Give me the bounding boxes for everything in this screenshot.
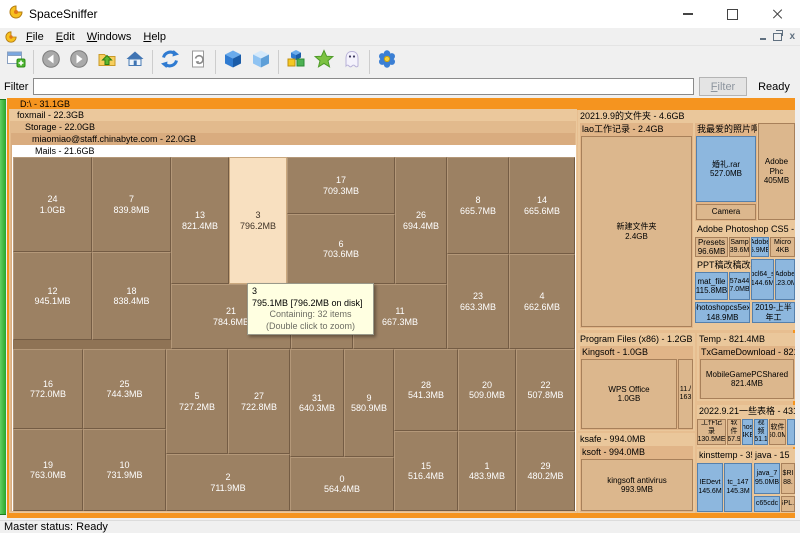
block-label: photoshopcs5ext xyxy=(695,303,750,313)
block-size: 744.3MB xyxy=(106,389,142,400)
block-label: 10 xyxy=(119,460,129,471)
section-header[interactable]: Temp - 821.4MB xyxy=(697,333,795,345)
treemap-block-17[interactable]: 17709.3MB xyxy=(287,157,395,214)
block-label: 21 xyxy=(226,306,236,317)
block-11./[interactable]: 11./163 xyxy=(678,359,693,429)
block-label: GPL.h xyxy=(781,500,795,509)
block-label: 25 xyxy=(119,379,129,390)
block-size: 839.8MB xyxy=(113,205,149,216)
block-c65cdc[interactable]: c65cdc xyxy=(754,496,780,512)
treemap-block-19[interactable]: 19763.0MB xyxy=(13,429,83,511)
block-label: 20 xyxy=(482,380,492,391)
block-size: 784.6MB xyxy=(213,317,249,328)
treemap-block-12[interactable]: 12945.1MB xyxy=(13,252,92,340)
block-size: 541.3MB xyxy=(408,390,444,401)
block-label: 15 xyxy=(421,461,431,472)
block-size: 4KB xyxy=(776,247,789,256)
treemap-block-29[interactable]: 29480.2MB xyxy=(516,431,575,511)
master-status: Master status: Ready xyxy=(4,521,108,533)
block-size: 95.0MB xyxy=(755,479,779,488)
block-size: 60.0M xyxy=(769,432,786,441)
block-label: MobileGamePCShared xyxy=(706,370,788,380)
nested-folder-header[interactable]: miaomiao@staff.chinabyte.com - 22.0GB xyxy=(11,133,575,145)
nested-folder-header[interactable]: Mails - 21.6GB xyxy=(12,145,576,157)
block-size: 564.4MB xyxy=(324,484,360,495)
treemap-block-8[interactable]: 8665.7MB xyxy=(447,157,509,254)
block-新建文件夹[interactable]: 新建文件夹2.4GB xyxy=(581,136,692,327)
block-size: 663.3MB xyxy=(460,302,496,313)
block-size: 772.0MB xyxy=(30,389,66,400)
menu-bar: FileEditWindowsHelp x xyxy=(0,28,800,45)
treemap-block-5[interactable]: 5727.2MB xyxy=(166,349,228,454)
options-flower-icon xyxy=(377,49,397,74)
block-size: 703.6MB xyxy=(323,249,359,260)
block-size: 509.0MB xyxy=(469,390,505,401)
block-label: c65cdc xyxy=(756,500,778,509)
block-label: 29 xyxy=(540,461,550,472)
block-mat_file[interactable]: mat_file115.8MB xyxy=(695,272,728,300)
refresh-selection-icon xyxy=(188,49,208,74)
treemap-block-9[interactable]: 9580.9MB xyxy=(344,349,394,457)
block-size: 39.6M xyxy=(730,247,749,256)
refresh-icon xyxy=(160,49,180,74)
tooltip-title: 3 xyxy=(252,286,369,298)
block-size: 945.1MB xyxy=(34,296,70,307)
section-header[interactable]: java - 15 xyxy=(753,449,795,461)
section-header[interactable]: TxGameDownload - 821.4MB xyxy=(699,346,795,358)
block-size: 148.9MB xyxy=(706,313,738,323)
block-size: 2.4GB xyxy=(625,232,648,242)
toolbar-separator xyxy=(152,50,153,74)
filter-label: Filter xyxy=(4,81,28,93)
block-label: WPS Office xyxy=(608,385,649,395)
menu-help[interactable]: Help xyxy=(137,30,172,44)
block-size: 51.1 xyxy=(754,436,768,445)
treemap-block-26[interactable]: 26694.4MB xyxy=(395,157,447,284)
block-WPS-Office[interactable]: WPS Office1.0GB xyxy=(581,359,677,429)
toolbar-separator xyxy=(33,50,34,74)
treemap-view: D:\ - 31.1GB foxmail - 22.3GBStorage - 2… xyxy=(0,97,800,520)
treemap-block-7[interactable]: 7839.8MB xyxy=(92,157,171,252)
block-label: $RI xyxy=(783,470,794,479)
block-size: 483.9MB xyxy=(469,471,505,482)
block-size: 727.2MB xyxy=(179,402,215,413)
block-MobileGamePCShared[interactable]: MobileGamePCShared821.4MB xyxy=(700,359,794,399)
filter-button[interactable]: Filter xyxy=(699,77,747,96)
section-header[interactable]: 2022.9.21一些表格 - 431.1MB xyxy=(697,405,795,417)
minimize-icon xyxy=(683,13,693,15)
block-size: 123.0M xyxy=(775,280,795,289)
block-size: 711.9MB xyxy=(210,483,245,494)
section-header[interactable]: 我最爱的照片啊 - 65 xyxy=(695,123,757,135)
cube-solid-button[interactable] xyxy=(219,48,247,75)
parent-folder-icon xyxy=(97,49,117,74)
block-label: 新建文件夹 xyxy=(617,222,657,232)
block-size: 722.8MB xyxy=(241,402,277,413)
block-size: 145.3M xyxy=(726,488,749,497)
cube-free-space-icon xyxy=(251,49,271,74)
block-label: 软件 xyxy=(771,424,785,433)
treemap-block-20[interactable]: 20509.0MB xyxy=(458,349,516,431)
block-label: 17 xyxy=(336,175,346,186)
block-size: 115.8MB xyxy=(696,286,727,296)
treemap-block-27[interactable]: 27722.8MB xyxy=(228,349,290,454)
block-kingsoft-antivirus[interactable]: kingsoft antivirus993.9MB xyxy=(581,459,693,511)
block-size: 88. xyxy=(783,479,793,488)
block-2019-上半年工[interactable]: 2019-上半年工 xyxy=(752,302,795,323)
block-size: 1.0GB xyxy=(40,205,66,216)
block-label: 9 xyxy=(366,393,371,404)
section-header[interactable]: kinsttemp - 358. xyxy=(697,449,752,461)
star-filter-button[interactable] xyxy=(310,48,338,75)
block-size: 516.4MB xyxy=(408,471,444,482)
minimize-button[interactable] xyxy=(665,0,710,28)
block-label: mat_file xyxy=(697,277,725,287)
menu-edit[interactable]: Edit xyxy=(50,30,81,44)
block-label: 28 xyxy=(421,380,431,391)
section-header[interactable]: ksafe - 994.0MB xyxy=(578,433,695,445)
block-java_7[interactable]: java_795.0MB xyxy=(754,463,780,494)
block-label: 工作记录 xyxy=(698,419,725,436)
cubes-detail-icon xyxy=(286,49,306,74)
block-size: 667.3MB xyxy=(382,317,418,328)
block-size: 821.4MB xyxy=(182,221,218,232)
block-hos[interactable]: hos4KE xyxy=(742,419,753,445)
block-label: tc_147 xyxy=(727,479,748,488)
toolbar-separator xyxy=(369,50,370,74)
block-size: 144.6M xyxy=(751,280,774,289)
block-Micro[interactable]: Micro4KB xyxy=(770,237,795,257)
filter-input[interactable] xyxy=(33,78,694,95)
refresh-selection-button[interactable] xyxy=(184,48,212,75)
block-size: 731.9MB xyxy=(106,470,142,481)
block-IEDevt[interactable]: IEDevt145.6M xyxy=(697,463,723,512)
section-header[interactable]: PPT稿改稿改稿改 xyxy=(695,259,751,271)
block-label: 6 xyxy=(338,239,343,250)
block-size: 96.6MB xyxy=(698,247,726,257)
block-size: 145.6M xyxy=(698,488,721,497)
block-size: 640.3MB xyxy=(299,403,335,414)
block-label: Camera xyxy=(712,207,740,217)
ghost-hidden-icon xyxy=(342,49,362,74)
block-label: Presets xyxy=(698,238,725,248)
treemap-block-6[interactable]: 6703.6MB xyxy=(287,214,395,284)
treemap-block-18[interactable]: 18838.4MB xyxy=(92,252,171,340)
block-label: 11./ xyxy=(680,386,691,395)
refresh-button[interactable] xyxy=(156,48,184,75)
block-size: 709.3MB xyxy=(323,186,359,197)
block-$RI[interactable]: $RI88. xyxy=(781,463,795,494)
back-icon xyxy=(41,49,61,74)
child-window-icon xyxy=(5,31,17,43)
block-size: 405MB xyxy=(764,176,789,186)
menu-windows[interactable]: Windows xyxy=(81,30,138,44)
forward-icon xyxy=(69,49,89,74)
free-space-strip[interactable] xyxy=(0,99,6,515)
parent-folder-button[interactable] xyxy=(93,48,121,75)
cube-free-space-button[interactable] xyxy=(247,48,275,75)
block-label: 14 xyxy=(537,195,547,206)
block-label: IEDevt xyxy=(699,479,720,488)
treemap-block-0[interactable]: 0564.4MB xyxy=(290,457,394,511)
block-label: Adobe xyxy=(775,271,795,280)
block-file[interactable] xyxy=(787,419,795,445)
spacesniffer-window: SpaceSniffer FileEditWindowsHelp x Filte… xyxy=(0,0,800,533)
status-bar: Master status: Ready xyxy=(0,520,800,533)
block-pcl64_s[interactable]: pcl64_s144.6M xyxy=(751,259,774,300)
block-size: 993.9MB xyxy=(621,485,653,495)
section-header[interactable]: Program Files (x86) - 1.2GB xyxy=(578,333,695,345)
block-label: Adobe xyxy=(751,239,769,248)
block-label: kingsoft antivirus xyxy=(607,476,667,486)
toolbar-separator xyxy=(215,50,216,74)
options-flower-button[interactable] xyxy=(373,48,401,75)
new-view-icon xyxy=(6,49,26,74)
block-label: 11 xyxy=(395,306,404,317)
block-label: 5 xyxy=(194,391,199,402)
app-icon xyxy=(9,5,23,24)
filter-bar: Filter Filter Ready xyxy=(0,76,800,97)
block-label: java_7 xyxy=(757,470,778,479)
treemap-block-15[interactable]: 15516.4MB xyxy=(394,431,458,511)
block-label: 26 xyxy=(416,210,426,221)
block-Presets[interactable]: Presets96.6MB xyxy=(695,237,728,257)
block-软件[interactable]: 软件60.0M xyxy=(769,419,786,445)
treemap-block-24[interactable]: 241.0GB xyxy=(13,157,92,252)
child-minimize-icon xyxy=(760,38,766,40)
block-label: Samp xyxy=(730,239,748,248)
block-label: 57a44 xyxy=(730,278,749,287)
block-label: 24 xyxy=(47,194,57,205)
block-label: 1 xyxy=(484,461,489,472)
block-size: 763.0MB xyxy=(30,470,66,481)
block-label: 22 xyxy=(540,380,550,391)
block-size: 694.4MB xyxy=(403,221,439,232)
block-label: hos xyxy=(742,424,753,433)
section-header[interactable]: Adobe Photoshop CS5 - 387.1M xyxy=(695,223,795,235)
nested-folder-header[interactable]: foxmail - 22.3GB xyxy=(9,109,577,121)
block-size: 67.9 xyxy=(727,436,741,445)
child-close-button[interactable]: x xyxy=(789,30,795,43)
block-label: Adobe Phc xyxy=(759,157,794,176)
treemap-block-3[interactable]: 3796.2MB xyxy=(229,157,287,284)
child-minimize-button[interactable] xyxy=(760,31,766,43)
block-tc_147[interactable]: tc_147145.3M xyxy=(724,463,752,512)
treemap-block-16[interactable]: 16772.0MB xyxy=(13,349,83,429)
toolbar-separator xyxy=(278,50,279,74)
forward-button[interactable] xyxy=(65,48,93,75)
close-button[interactable] xyxy=(755,0,800,28)
block-label: 31 xyxy=(312,393,322,404)
block-size: 480.2MB xyxy=(527,471,563,482)
block-size: 7.0MB xyxy=(729,286,749,295)
block-label: 8 xyxy=(475,195,480,206)
block-size: 5.9ME xyxy=(751,247,769,256)
block-size: 4KE xyxy=(742,432,753,441)
block-label: 婚礼.rar xyxy=(712,160,740,170)
back-button[interactable] xyxy=(37,48,65,75)
block-size: 838.4MB xyxy=(113,296,149,307)
block-size: 665.6MB xyxy=(524,206,560,217)
child-restore-icon xyxy=(773,33,782,41)
block-Samp[interactable]: Samp39.6M xyxy=(729,237,750,257)
block-size: 527.0MB xyxy=(710,169,742,179)
hover-tooltip: 3 795.1MB [796.2MB on disk] Containing: … xyxy=(247,283,374,335)
nested-folder-header[interactable]: Storage - 22.0GB xyxy=(10,121,576,133)
home-button[interactable] xyxy=(121,48,149,75)
menu-file[interactable]: File xyxy=(20,30,50,44)
block-label: 3 xyxy=(255,210,260,221)
block-label: 7 xyxy=(129,194,134,205)
block-工作记录[interactable]: 工作记录130.5ME xyxy=(697,419,726,445)
block-label: 27 xyxy=(254,391,264,402)
ghost-hidden-button[interactable] xyxy=(338,48,366,75)
treemap-block-2[interactable]: 2711.9MB xyxy=(166,454,290,511)
block-婚礼.rar[interactable]: 婚礼.rar527.0MB xyxy=(696,136,756,202)
section-header[interactable]: 2021.9.9的文件夹 - 4.6GB xyxy=(578,110,795,122)
block-软件[interactable]: 软件67.9 xyxy=(727,419,741,445)
block-Camera[interactable]: Camera xyxy=(696,204,756,220)
block-size: 796.2MB xyxy=(240,221,276,232)
close-icon xyxy=(772,8,784,20)
tooltip-hint: (Double click to zoom) xyxy=(252,321,369,333)
block-Adobe[interactable]: Adobe123.0M xyxy=(775,259,795,300)
cube-solid-icon xyxy=(223,49,243,74)
block-label: 19 xyxy=(43,460,53,471)
block-label: 2 xyxy=(225,472,230,483)
block-Adobe[interactable]: Adobe5.9ME xyxy=(751,237,769,257)
block-label: 13 xyxy=(195,210,205,221)
title-bar: SpaceSniffer xyxy=(0,0,800,28)
star-filter-icon xyxy=(314,49,334,74)
block-size: 1.0GB xyxy=(618,394,641,404)
new-view-button[interactable] xyxy=(2,48,30,75)
cubes-detail-button[interactable] xyxy=(282,48,310,75)
block-label: 16 xyxy=(43,379,53,390)
block-GPL.h[interactable]: GPL.h xyxy=(781,496,795,512)
block-size: 662.6MB xyxy=(524,302,560,313)
treemap-block-25[interactable]: 25744.3MB xyxy=(83,349,166,429)
tooltip-containing: Containing: 32 items xyxy=(252,309,369,321)
toolbar xyxy=(0,45,800,78)
block-label: Micro xyxy=(774,239,791,248)
window-title: SpaceSniffer xyxy=(29,7,98,21)
block-label: 23 xyxy=(473,291,483,302)
block-size: 821.4MB xyxy=(731,379,763,389)
block-label: 12 xyxy=(47,286,57,297)
block-label: 0 xyxy=(339,474,344,485)
block-size: 665.7MB xyxy=(460,206,496,217)
treemap-block-10[interactable]: 10731.9MB xyxy=(83,429,166,511)
tooltip-size: 795.1MB [796.2MB on disk] xyxy=(252,298,369,310)
block-57a44[interactable]: 57a447.0MB xyxy=(729,272,750,300)
child-restore-button[interactable] xyxy=(773,30,782,44)
section-header[interactable]: Kingsoft - 1.0GB xyxy=(580,346,693,358)
block-视频[interactable]: 视频51.1 xyxy=(754,419,768,445)
block-size: 163 xyxy=(680,394,692,403)
block-label: 18 xyxy=(126,286,136,297)
section-header[interactable]: lao工作记录 - 2.4GB xyxy=(580,123,693,135)
treemap-block-14[interactable]: 14665.6MB xyxy=(509,157,575,254)
block-label: pcl64_s xyxy=(751,271,774,280)
block-label: 软件 xyxy=(728,419,740,436)
block-label: 视频 xyxy=(755,419,767,436)
maximize-icon xyxy=(727,9,738,20)
treemap-block-23[interactable]: 23663.3MB xyxy=(447,254,509,349)
treemap-block-13[interactable]: 13821.4MB xyxy=(171,157,229,284)
treemap-block-31[interactable]: 31640.3MB xyxy=(290,349,344,457)
maximize-button[interactable] xyxy=(710,0,755,28)
treemap-block-22[interactable]: 22507.8MB xyxy=(516,349,575,431)
block-Adobe-Phc[interactable]: Adobe Phc405MB xyxy=(758,123,795,220)
home-icon xyxy=(125,49,145,74)
treemap-block-28[interactable]: 28541.3MB xyxy=(394,349,458,431)
filter-status: Ready xyxy=(752,81,796,93)
block-size: 130.5ME xyxy=(697,436,725,445)
block-size: 580.9MB xyxy=(351,403,387,414)
treemap-block-1[interactable]: 1483.9MB xyxy=(458,431,516,511)
block-size: 507.8MB xyxy=(527,390,563,401)
block-label: 4 xyxy=(539,291,544,302)
section-header[interactable]: ksoft - 994.0MB xyxy=(580,446,693,458)
block-label: 2019-上半年工 xyxy=(753,303,794,322)
block-photoshopcs5ext[interactable]: photoshopcs5ext148.9MB xyxy=(695,302,750,323)
treemap-block-4[interactable]: 4662.6MB xyxy=(509,254,575,349)
